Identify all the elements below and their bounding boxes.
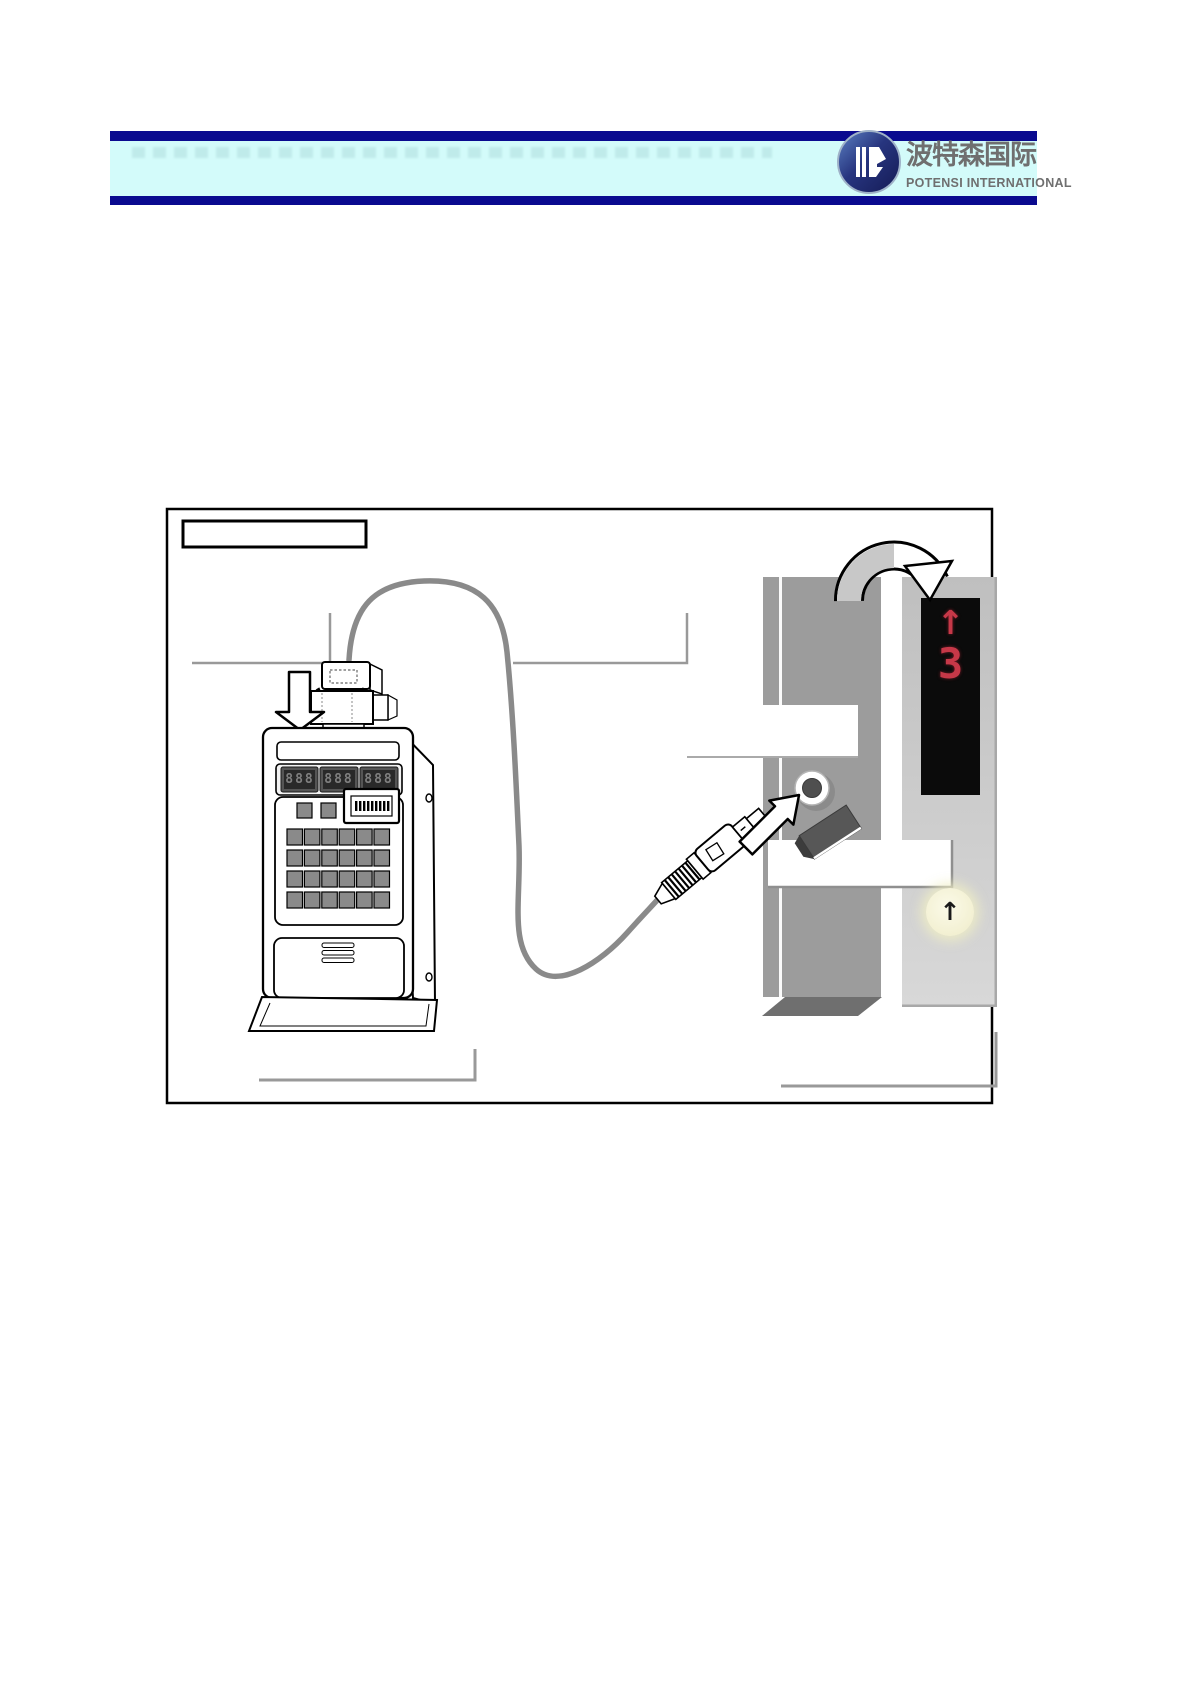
device-speaker-vents (322, 943, 354, 963)
device-top-window (277, 742, 399, 760)
figure-caption-box (183, 521, 366, 547)
manual-page: 波特森国际 POTENSI INTERNATIONAL (0, 0, 1190, 1684)
device-display-value-2: 888 (322, 769, 356, 790)
indicator-direction-arrow: ↑ (921, 604, 980, 642)
indicator-floor-number: 3 (921, 640, 980, 688)
connection-diagram (0, 0, 1190, 1684)
callout-box-1 (687, 705, 858, 757)
device-tray (249, 997, 437, 1031)
device-socket (344, 789, 399, 823)
callout-box-2 (768, 840, 952, 887)
device-function-key (321, 803, 336, 818)
device-display-value-3: 888 (362, 769, 396, 790)
device-function-key (297, 803, 312, 818)
device-display-value-1: 888 (283, 769, 317, 790)
hall-call-up-button: ↑ (926, 888, 974, 936)
